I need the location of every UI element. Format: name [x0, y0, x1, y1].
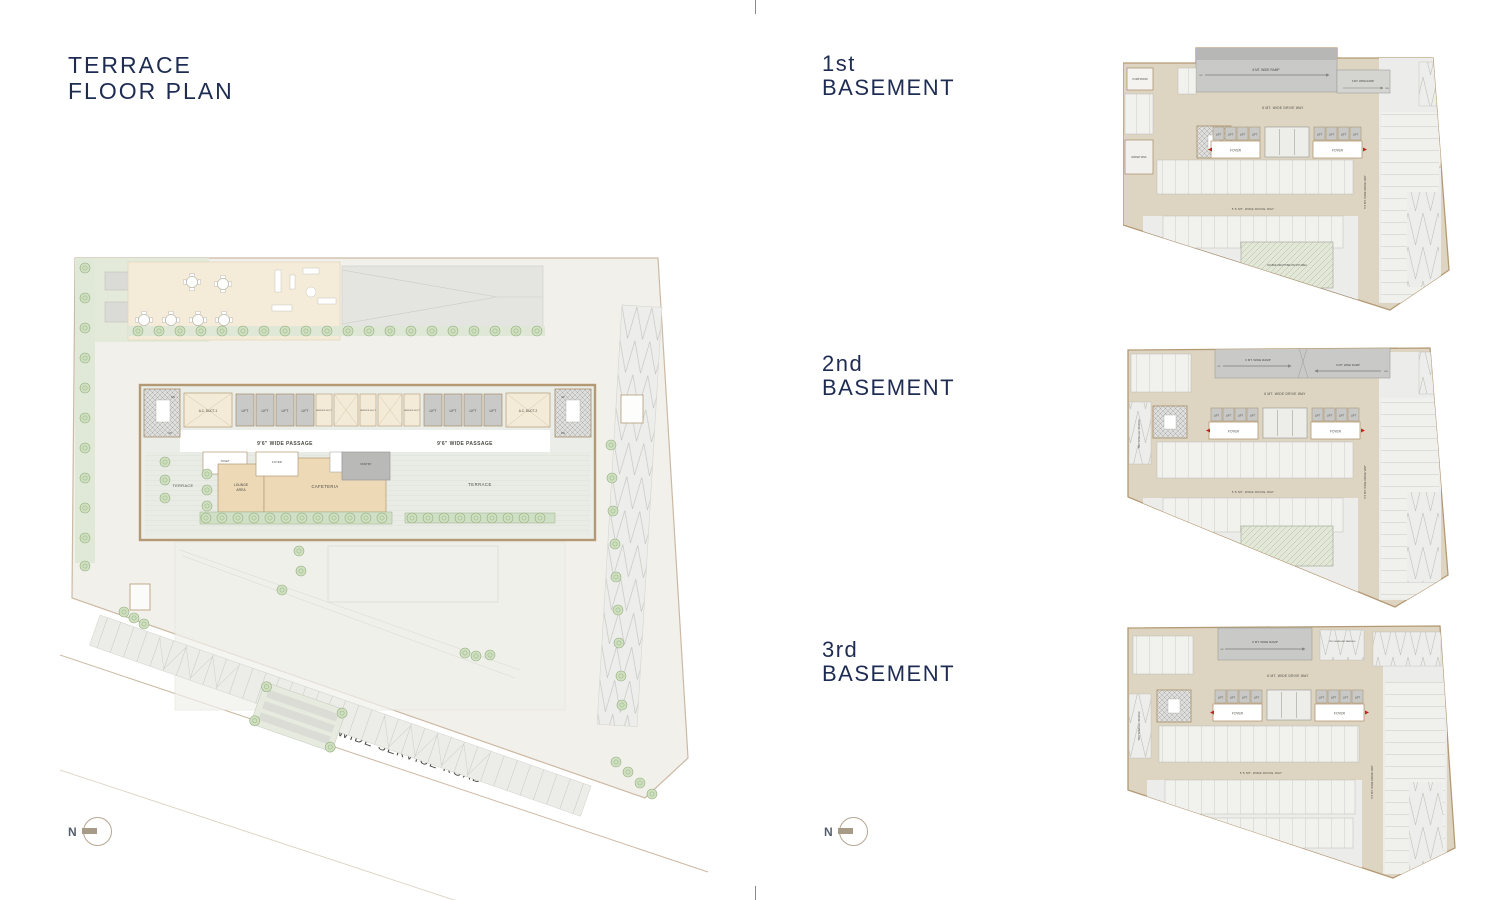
b3-drive-mid-label: 5.5 MT. WIDE DRIVE WAY — [1240, 771, 1282, 775]
b3-stalls-topleft — [1133, 636, 1193, 674]
b3-up-label: UP — [1220, 649, 1224, 651]
b3-ramp-label: 6 MT. WIDE RAMP — [1252, 640, 1278, 644]
basement-2-title: 2nd BASEMENT — [822, 352, 955, 400]
passage-label-right: 9'6" WIDE PASSAGE — [437, 441, 493, 447]
b3-stalls-row-a — [1159, 726, 1359, 762]
foyer-room — [256, 452, 298, 476]
basement-2-title-num: 2nd — [822, 352, 955, 376]
stair-landing — [156, 400, 170, 422]
b1-stalls-topright — [1419, 62, 1439, 106]
b1-drive-top-label: 6 MT. WIDE DRIVE WAY — [1262, 106, 1304, 110]
b1-ramp-upper — [1196, 48, 1337, 60]
page-divider-bottom — [755, 886, 756, 900]
cafeteria-label: CAFETERIA — [311, 484, 338, 489]
b3-stalls-right-v — [1409, 782, 1443, 872]
b1-drive-mid-label: 5.5 MT. WIDE DRIVE WAY — [1232, 207, 1274, 211]
b1-stalls-left — [1125, 94, 1153, 134]
b1-stp-label: DOUBLE HEIGHT BELOW STP AREA — [1267, 264, 1307, 267]
up-label: UP — [168, 431, 172, 435]
b1-drive-right-label: 5.5 MT. WIDE DRIVE WAY — [1363, 175, 1367, 209]
dn-label: DN — [171, 395, 175, 399]
up-label: UP — [561, 395, 565, 399]
roof-panel-below — [328, 546, 498, 602]
basement-3-plan: 6 MT. WIDE RAMP UP TWO WHEELER PARKING 6… — [1123, 622, 1458, 884]
terrace-label-right: TERRACE — [468, 482, 492, 487]
b2-stalls-topright — [1419, 352, 1439, 394]
north-bar-icon — [82, 828, 97, 834]
utility-structure — [621, 395, 643, 423]
basement-2-plan: 6 MT. WIDE RAMP 6 MT. WIDE RAMP UP DN 6 … — [1123, 342, 1453, 608]
north-label: N — [68, 825, 78, 839]
terrace-label-left: TERRACE — [173, 484, 194, 488]
b2-drive-right-label: 5.5 MT. WIDE DRIVE WAY — [1363, 465, 1367, 499]
b1-pump-room-label: PUMP ROOM — [1133, 78, 1148, 81]
kiosk-structure — [130, 584, 150, 610]
service-duct-label: SERVICE DUCT — [316, 410, 332, 412]
ac-duct-2-label: A.C. DUCT-2 — [519, 409, 538, 413]
b2-ramp — [1215, 345, 1390, 378]
passage-label-left: 9'6" WIDE PASSAGE — [257, 441, 313, 447]
b1-ramp-side-label: 6 MT. WIDE RAMP — [1352, 79, 1374, 83]
north-label: N — [824, 825, 834, 839]
lift-label: LIFT — [262, 409, 269, 413]
page-title: TERRACE FLOOR PLAN — [68, 52, 234, 104]
pantry-room — [342, 452, 390, 480]
pantry-label: PANTRY — [360, 462, 371, 466]
b3-stalls-row-b — [1165, 780, 1355, 814]
b2-stp-area — [1241, 526, 1333, 566]
lift-label: LIFT — [242, 409, 249, 413]
basement-1-plan: 6 MT. WIDE RAMP UP 6 MT. WIDE RAMP DN 6 … — [1123, 42, 1453, 314]
lift-label: LIFT — [282, 409, 289, 413]
lift-label: LIFT — [450, 409, 457, 413]
terrace-floor-plan: 12.00 MT. WIDE SERVICE ROAD — [60, 250, 710, 900]
green-strip-left — [75, 258, 95, 563]
b2-dn-label: DN — [1384, 371, 1388, 373]
north-arrow-right: N — [824, 817, 868, 846]
b2-drive-mid-label: 5.5 MT. WIDE DRIVE WAY — [1232, 490, 1274, 494]
lounge-label-1: LOUNGE — [234, 483, 249, 487]
basement-1-title: 1st BASEMENT — [822, 52, 955, 100]
basement-1-title-word: BASEMENT — [822, 76, 955, 100]
b2-two-wheeler-label: TWO WHEELER PARKING — [1138, 419, 1141, 448]
b2-up-label: UP — [1217, 366, 1221, 368]
b1-dn-label: DN — [1385, 88, 1389, 90]
north-circle-icon — [839, 817, 868, 846]
b3-drive-right-label: 5.5 MT. WIDE DRIVE WAY — [1370, 765, 1374, 799]
b1-water-tank-label: WATER TANK — [1131, 156, 1147, 159]
b2-stalls-topleft — [1131, 354, 1191, 392]
lift-label: LIFT — [470, 409, 477, 413]
lift-label: LIFT — [490, 409, 497, 413]
toilet-label: TOILET — [220, 459, 229, 463]
basement-1-title-num: 1st — [822, 52, 955, 76]
b1-stalls-right-v — [1407, 192, 1439, 287]
basement-2-title-word: BASEMENT — [822, 376, 955, 400]
b2-stalls-right-v — [1407, 492, 1439, 582]
b3-two-wheeler-top-strip — [1320, 630, 1364, 660]
service-duct-label: SERVICE DUCT — [404, 410, 420, 412]
basement-3-title: 3rd BASEMENT — [822, 638, 955, 686]
north-bar-icon — [838, 828, 853, 834]
b3-drive-top-label: 6 MT. WIDE DRIVE WAY — [1267, 674, 1309, 678]
b1-up-label: UP — [1199, 75, 1203, 77]
b3-two-wheeler-left-label: TWO WHEELER PARKING — [1138, 711, 1141, 740]
b1-stalls-top — [1178, 68, 1196, 94]
passage — [180, 430, 550, 452]
b1-stalls-row-a — [1157, 160, 1353, 194]
lounge-label-2: AREA — [236, 488, 246, 492]
page-divider-top — [755, 0, 756, 14]
north-circle-icon — [83, 817, 112, 846]
pantry-store — [330, 452, 342, 472]
service-duct-label: SERVICE DUCT — [360, 410, 376, 412]
page-title-line1: TERRACE — [68, 52, 234, 78]
b2-ramp-side-label: 6 MT. WIDE RAMP — [1336, 363, 1360, 367]
page-title-line2: FLOOR PLAN — [68, 78, 234, 104]
b3-stalls-topright — [1373, 632, 1441, 666]
b2-ramp-label: 6 MT. WIDE RAMP — [1245, 358, 1271, 362]
lift-label: LIFT — [430, 409, 437, 413]
terrace-building: DN UP UP DN A.C. DUCT-1 LIFT LIFT LIFT L… — [140, 385, 595, 540]
lift-label: LIFT — [302, 409, 309, 413]
ac-duct-1-label: A.C. DUCT-1 — [199, 409, 218, 413]
green-band-top — [128, 326, 545, 336]
dn-label: DN — [561, 431, 565, 435]
b3-stalls-row-c — [1183, 818, 1353, 848]
foyer-label: FOYER — [272, 460, 282, 464]
b2-drive-top-label: 6 MT. WIDE DRIVE WAY — [1264, 392, 1306, 396]
b2-stalls-row-a — [1157, 442, 1353, 478]
north-arrow-left: N — [68, 817, 112, 846]
stair-landing — [566, 400, 580, 422]
basement-3-title-word: BASEMENT — [822, 662, 955, 686]
b3-ramp — [1218, 628, 1312, 660]
basement-3-title-num: 3rd — [822, 638, 955, 662]
b3-two-wheeler-top-label: TWO WHEELER PARKING — [1329, 640, 1356, 643]
b1-ramp-label: 6 MT. WIDE RAMP — [1252, 68, 1279, 72]
